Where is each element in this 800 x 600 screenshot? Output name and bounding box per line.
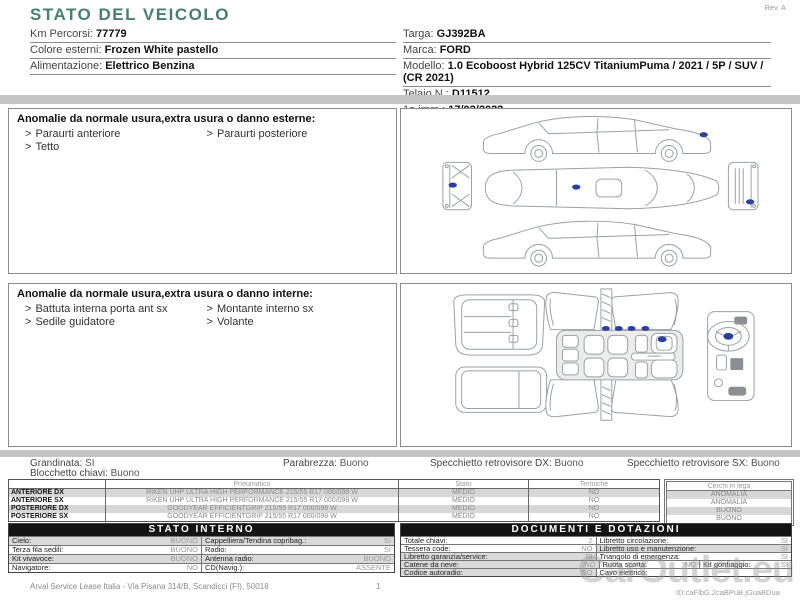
- cell-label: Totale chiavi:: [404, 537, 447, 544]
- cerchi-value: BUONO: [667, 507, 791, 515]
- external-anomalies-title: Anomalie da normale usura,extra usura o …: [17, 113, 388, 125]
- tyre-termiche: NO: [529, 497, 659, 505]
- cell-label: Navigatore:: [12, 564, 50, 572]
- anomaly-item: >Tetto: [25, 141, 207, 154]
- cell-value: NO: [584, 561, 595, 568]
- field-km-percorsi: Km Percorsi: 77779: [30, 27, 396, 43]
- table-row: Tessera code:NO Libretto uso e manutenzi…: [401, 544, 791, 552]
- cerchi-header: Cerchi in lega: [667, 482, 791, 491]
- watermark-id: ID:caFlbG.2caBPuB.jGuaBDua: [676, 588, 780, 597]
- field-value: Frozen White pastello: [105, 44, 219, 56]
- internal-anomalies-list: >Battuta interna porta ant sx >Montante …: [17, 303, 388, 329]
- internal-anomalies-box: Anomalie da normale usura,extra usura o …: [8, 283, 397, 447]
- anomaly-item: >Montante interno sx: [207, 303, 389, 316]
- revision-label: Rev. A: [764, 3, 786, 12]
- tyre-row: POSTERIORE SX GOODYEAR EFFICIENTGRIP 215…: [9, 513, 659, 521]
- cell-label: Kit gonfiaggio:: [703, 561, 751, 568]
- tyre-stato: MEDIO: [399, 513, 529, 521]
- field-modello: Modello: 1.0 Ecoboost Hybrid 125CV Titan…: [403, 59, 771, 87]
- cell-value: BUONO: [170, 537, 198, 545]
- table-row: Cielo:BUONO Cappelliera/Tendina copribag…: [9, 536, 394, 545]
- field-label: Marca:: [403, 44, 437, 56]
- anomaly-text: Tetto: [35, 141, 59, 153]
- cell-label: CD(Navig.):: [205, 564, 244, 572]
- summary-item-blocchetto-chiavi: Blocchetto chiavi: Buono: [30, 469, 140, 479]
- tyre-header-termiche: Termiche: [529, 480, 659, 489]
- documenti-header: DOCUMENTI E DOTAZIONI: [401, 524, 791, 536]
- summary-value: Buono: [751, 458, 780, 469]
- cerchi-value: ANOMALIA: [667, 491, 791, 499]
- tyre-header-stato: Stato: [399, 480, 529, 489]
- field-alimentazione: Alimentazione: Elettrico Benzina: [30, 59, 396, 75]
- table-row: Terza fila sedili:BUONO Radio:SI: [9, 545, 394, 554]
- cell-value: NO: [685, 561, 696, 568]
- car-rear-view: [443, 162, 472, 209]
- cell-value: SI: [781, 561, 788, 568]
- field-value: 77779: [96, 28, 127, 40]
- tyre-stato: MEDIO: [399, 505, 529, 513]
- internal-anomalies-title: Anomalie da normale usura,extra usura o …: [17, 288, 388, 300]
- summary-value: Buono: [340, 458, 369, 469]
- tyre-description: RIKEN UHP ULTRA HIGH PERFORMANCE 215/55 …: [106, 497, 399, 505]
- trunk-view: [456, 367, 547, 412]
- stato-interno-table: STATO INTERNO Cielo:BUONO Cappelliera/Te…: [8, 523, 395, 573]
- cell-label: Libretto uso e manutenzione:: [600, 545, 697, 552]
- anomaly-text: Montante interno sx: [217, 303, 314, 315]
- cell-label: Kit vivavoce:: [12, 555, 54, 563]
- tyre-description: GOODYEAR EFFICIENTGRIP 215/55 R17 000/09…: [106, 505, 399, 513]
- field-marca: Marca: FORD: [403, 43, 771, 59]
- field-label: Colore esterni:: [30, 44, 102, 56]
- anomaly-text: Paraurti anteriore: [35, 128, 120, 140]
- summary-item-parabrezza: Parabrezza: Buono: [283, 459, 369, 469]
- tyre-row: POSTERIORE DX GOODYEAR EFFICIENTGRIP 215…: [9, 505, 659, 513]
- field-value: GJ392BA: [437, 28, 486, 40]
- vehicle-info-right: Targa: GJ392BA Marca: FORD Modello: 1.0 …: [403, 27, 771, 119]
- interior-car-diagram: [401, 284, 791, 446]
- summary-label: Specchietto retrovisore DX:: [430, 458, 552, 469]
- field-colore-esterni: Colore esterni: Frozen White pastello: [30, 43, 396, 59]
- tyre-position: POSTERIORE DX: [9, 505, 106, 513]
- summary-label: Specchietto retrovisore SX:: [627, 458, 748, 469]
- anomaly-item: >Battuta interna porta ant sx: [25, 303, 207, 316]
- tyre-header-empty: [9, 480, 106, 489]
- cell-value: SI: [781, 545, 788, 552]
- cell-label: Terza fila sedili:: [12, 546, 63, 554]
- cell-value: BUONO: [363, 555, 391, 563]
- tyre-table: Pneumatico Stato Termiche ANTERIORE DX R…: [8, 479, 660, 522]
- cell-label: Triangolo di emergenza:: [600, 553, 681, 560]
- field-value: FORD: [440, 44, 471, 56]
- tyre-termiche: NO: [529, 489, 659, 497]
- damage-marker-icon: [449, 183, 457, 188]
- field-value: 1.0 Ecoboost Hybrid 125CV TitaniumPuma /…: [403, 60, 763, 84]
- tyre-position: ANTERIORE SX: [9, 497, 106, 505]
- field-targa: Targa: GJ392BA: [403, 27, 771, 43]
- summary-item-specchietto-sx: Specchietto retrovisore SX: Buono: [627, 459, 780, 469]
- tyre-table-header: Pneumatico Stato Termiche: [9, 480, 659, 489]
- vehicle-info-left: Km Percorsi: 77779 Colore esterni: Froze…: [30, 27, 396, 75]
- cell-value: SI: [384, 537, 391, 545]
- table-row: Kit vivavoce:BUONO Antenna radio:BUONO: [9, 554, 394, 563]
- footer-company: Arval Service Lease Italia - Via Pisana …: [30, 582, 269, 591]
- stato-interno-header: STATO INTERNO: [9, 524, 394, 536]
- anomaly-bullet: >: [25, 303, 31, 315]
- summary-value: Buono: [111, 468, 140, 479]
- report-title: STATO DEL VEICOLO: [30, 5, 230, 25]
- footer-page-number: 1: [376, 582, 380, 591]
- cell-label: Ruota scorta:: [603, 561, 648, 568]
- cell-value: NO: [187, 564, 198, 572]
- external-anomalies-box: Anomalie da normale usura,extra usura o …: [8, 108, 397, 274]
- cell-value: 2: [588, 537, 592, 544]
- exterior-diagram-box: [400, 108, 792, 274]
- damage-marker-icon: [602, 326, 610, 331]
- table-row: Totale chiavi:2 Libretto circolazione:SI: [401, 536, 791, 544]
- cell-label: Antenna radio:: [205, 555, 254, 563]
- anomaly-bullet: >: [207, 128, 213, 140]
- anomaly-item: >Paraurti posteriore: [207, 128, 389, 141]
- cell-label: Cappelliera/Tendina copribag.:: [205, 537, 306, 545]
- cerchi-value: ANOMALIA: [667, 499, 791, 507]
- damage-marker-icon: [746, 199, 754, 204]
- cell-value: SI: [781, 553, 788, 560]
- cabin-top-view: [546, 289, 683, 420]
- field-label: Modello:: [403, 60, 445, 72]
- tyre-termiche: NO: [529, 505, 659, 513]
- anomaly-bullet: >: [25, 128, 31, 140]
- cell-label: Tessera code:: [404, 545, 451, 552]
- damage-marker-icon: [628, 326, 636, 331]
- table-row: Catene da neve:NO Ruota scorta:NO Kit go…: [401, 560, 791, 568]
- summary-label: Parabrezza:: [283, 458, 337, 469]
- cell-value: ASSENTE: [356, 564, 391, 572]
- tyre-header-pneumatico: Pneumatico: [106, 480, 399, 489]
- cell-label: Cielo:: [12, 537, 31, 545]
- anomaly-bullet: >: [207, 303, 213, 315]
- tyre-stato: MEDIO: [399, 489, 529, 497]
- tyre-row: ANTERIORE DX RIKEN UHP ULTRA HIGH PERFOR…: [9, 489, 659, 497]
- tyre-termiche: NO: [529, 513, 659, 521]
- anomaly-text: Paraurti posteriore: [217, 128, 308, 140]
- car-side-view-bottom: [483, 221, 710, 266]
- anomaly-bullet: >: [207, 316, 213, 328]
- damage-marker-icon: [641, 326, 649, 331]
- anomaly-item: >Sedile guidatore: [25, 316, 207, 329]
- cell-label: Cavo elettrico:: [600, 569, 648, 576]
- rear-seatback-view: [454, 295, 545, 355]
- cell-value: SI: [585, 553, 592, 560]
- damage-marker-icon: [700, 132, 708, 137]
- cell-value: SI: [781, 537, 788, 544]
- field-label: Km Percorsi:: [30, 28, 93, 40]
- documenti-table: DOCUMENTI E DOTAZIONI Totale chiavi:2 Li…: [400, 523, 792, 577]
- anomaly-bullet: >: [25, 141, 31, 153]
- anomaly-text: Battuta interna porta ant sx: [35, 303, 167, 315]
- anomaly-bullet: >: [25, 316, 31, 328]
- tyre-position: ANTERIORE DX: [9, 489, 106, 497]
- cell-label: Codice autoradio:: [404, 569, 463, 576]
- cell-value: SI: [384, 546, 391, 554]
- field-value: Elettrico Benzina: [105, 60, 194, 72]
- cell-label: Libretto circolazione:: [600, 537, 669, 544]
- damage-marker-icon: [572, 184, 580, 189]
- cell-label: Catene da neve:: [404, 561, 459, 568]
- tyre-stato: MEDIO: [399, 497, 529, 505]
- car-side-view-top: [483, 116, 710, 161]
- cell-label: Radio:: [205, 546, 227, 554]
- section-divider: [0, 95, 800, 104]
- field-label: Targa:: [403, 28, 434, 40]
- cerchi-table: Cerchi in lega ANOMALIA ANOMALIA BUONO B…: [664, 479, 794, 526]
- summary-label: Blocchetto chiavi:: [30, 468, 108, 479]
- table-row: Libretto garanzia/service:SI Triangolo d…: [401, 552, 791, 560]
- tyre-position: POSTERIORE SX: [9, 513, 106, 521]
- car-top-view: [485, 167, 718, 208]
- anomaly-text: Sedile guidatore: [35, 316, 115, 328]
- cell-value: BUONO: [170, 546, 198, 554]
- summary-value: Buono: [555, 458, 584, 469]
- damage-marker-icon: [615, 326, 623, 331]
- cell-value: BUONO: [170, 555, 198, 563]
- damage-marker-icon: [723, 333, 733, 340]
- tyre-row: ANTERIORE SX RIKEN UHP ULTRA HIGH PERFOR…: [9, 497, 659, 505]
- cell-value: NO: [581, 545, 592, 552]
- dashboard-view: [708, 312, 754, 401]
- cell-label: Libretto garanzia/service:: [404, 553, 488, 560]
- cell-value: NO: [581, 569, 592, 576]
- damage-marker-icon: [658, 336, 667, 342]
- table-row: Navigatore:NO CD(Navig.):ASSENTE: [9, 563, 394, 572]
- anomaly-text: Volante: [217, 316, 254, 328]
- cerchi-value: BUONO: [667, 515, 791, 523]
- table-row: Codice autoradio:NO Cavo elettrico:: [401, 568, 791, 576]
- anomaly-item: >Paraurti anteriore: [25, 128, 207, 141]
- field-label: Alimentazione:: [30, 60, 102, 72]
- tyre-description: RIKEN UHP ULTRA HIGH PERFORMANCE 215/55 …: [106, 489, 399, 497]
- external-anomalies-list: >Paraurti anteriore >Paraurti posteriore…: [17, 128, 388, 154]
- interior-diagram-box: [400, 283, 792, 447]
- section-divider: [0, 450, 800, 457]
- tyre-description: GOODYEAR EFFICIENTGRIP 215/55 R17 000/09…: [106, 513, 399, 521]
- summary-item-specchietto-dx: Specchietto retrovisore DX: Buono: [430, 459, 583, 469]
- anomaly-item: >Volante: [207, 316, 389, 329]
- exterior-car-diagram: [401, 109, 791, 273]
